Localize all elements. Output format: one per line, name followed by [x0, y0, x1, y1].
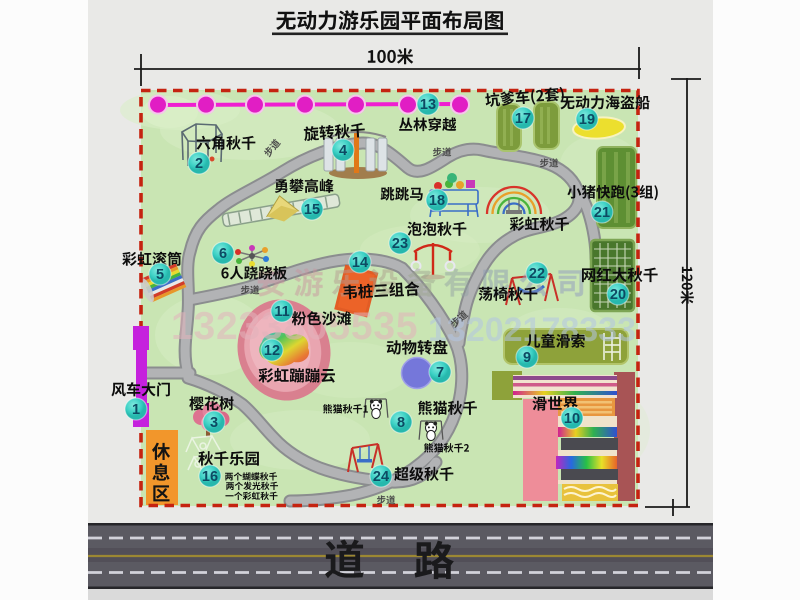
svg-text:16: 16: [202, 469, 218, 485]
svg-text:2: 2: [195, 156, 203, 172]
svg-text:22: 22: [529, 266, 545, 282]
svg-text:5: 5: [156, 267, 164, 283]
svg-text:13: 13: [420, 97, 436, 113]
svg-text:19: 19: [579, 112, 595, 128]
svg-text:20: 20: [610, 287, 626, 303]
svg-text:11: 11: [274, 304, 289, 320]
svg-text:13202178333: 13202178333: [428, 311, 636, 349]
svg-text:24: 24: [373, 469, 389, 485]
svg-text:8: 8: [397, 415, 405, 431]
svg-text:17: 17: [515, 111, 531, 127]
svg-text:21: 21: [594, 205, 610, 221]
svg-text:6: 6: [219, 246, 227, 262]
svg-text:18: 18: [429, 193, 445, 209]
svg-text:3: 3: [210, 415, 218, 431]
svg-text:9: 9: [523, 350, 531, 366]
svg-text:1: 1: [132, 402, 140, 418]
svg-text:10: 10: [564, 411, 580, 427]
svg-text:14: 14: [352, 255, 368, 271]
svg-text:7: 7: [436, 365, 444, 381]
svg-text:15: 15: [304, 202, 320, 218]
svg-text:4: 4: [339, 143, 347, 159]
svg-text:23: 23: [392, 236, 408, 252]
svg-text:12: 12: [264, 343, 280, 359]
